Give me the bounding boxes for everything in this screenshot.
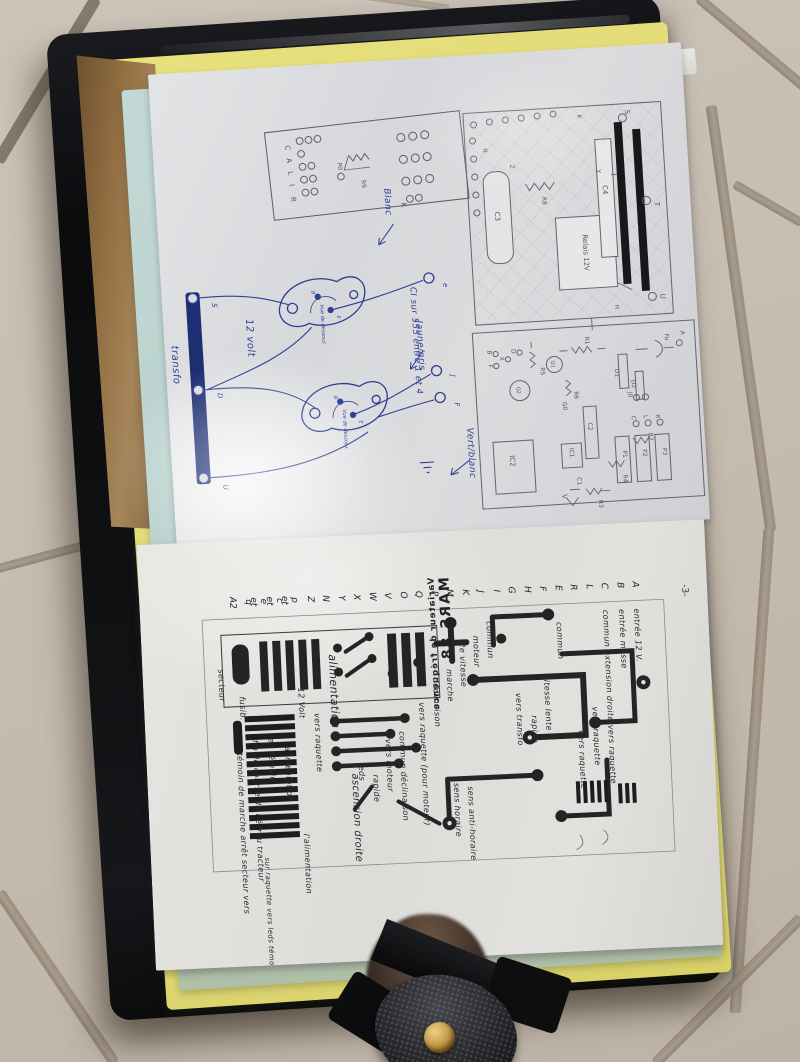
grout-line xyxy=(732,180,800,227)
part-label: P0 xyxy=(335,162,343,170)
annotation: 12 Volt xyxy=(296,688,306,719)
part-label: R9 xyxy=(359,180,367,189)
part-label: J0 xyxy=(626,391,633,398)
part-label: R6 xyxy=(572,391,579,400)
top-page-schematic: C A L I R K R9 P0 xyxy=(148,42,710,552)
part-label: Q1 xyxy=(549,360,555,367)
grout-line xyxy=(695,0,800,92)
terminal-letter: C xyxy=(283,145,292,151)
annotation: rapide xyxy=(530,715,540,743)
photo-scene: C A L I R K R9 P0 xyxy=(0,0,800,1062)
part-label: IC2 xyxy=(508,455,517,467)
out-terminal: e xyxy=(441,283,449,288)
part-label: R5 xyxy=(539,367,546,376)
wire-color-label: Blanc xyxy=(381,188,393,216)
package-note: Vue de dessous xyxy=(318,304,326,344)
edge-letter: N xyxy=(481,148,488,153)
out-terminal: J xyxy=(449,372,457,377)
part-label: D1 xyxy=(613,368,621,377)
part-label: R2 xyxy=(647,433,654,442)
annotation: commun xyxy=(555,622,566,660)
edge-letter: Y xyxy=(594,168,601,173)
blue-transfo-drawing: S D U e J F Vue de dessous B E Vue de de… xyxy=(182,220,471,491)
part-label: R8 xyxy=(540,197,547,206)
pin-label: B xyxy=(309,291,315,295)
annotation: commun xyxy=(484,621,495,659)
voltage-label: 12 volt xyxy=(243,319,256,358)
pin-label: E xyxy=(357,420,363,424)
annotation: rapide xyxy=(371,774,381,802)
bar-terminal: D xyxy=(215,393,223,399)
edge-letter: L xyxy=(642,415,649,419)
part-label: R1 xyxy=(583,336,590,345)
transfo-label: transfo xyxy=(169,345,182,384)
edge-letter: Z xyxy=(508,164,515,169)
edge-letter: D xyxy=(509,349,516,354)
part-label: C2 xyxy=(586,422,593,431)
grout-line xyxy=(0,540,90,573)
terminal-strip-box: C A L I R K R9 P0 xyxy=(264,111,469,223)
edge-letter: R xyxy=(654,414,661,419)
grout-line xyxy=(730,528,775,1014)
part-label: D2 xyxy=(629,379,637,388)
grout-line xyxy=(706,105,777,532)
top-page-drawing: C A L I R K R9 P0 xyxy=(148,42,710,552)
pin-label: B xyxy=(332,396,338,400)
part-label: P3 xyxy=(661,448,668,456)
terminal-letter-k: K xyxy=(399,202,408,208)
part-label: Fu xyxy=(663,333,670,341)
pin-label: E xyxy=(335,315,341,319)
annotation: marche xyxy=(445,669,455,702)
edge-letter: X xyxy=(498,356,505,361)
part-label: G0 xyxy=(561,402,569,411)
part-label: R4 xyxy=(621,474,628,483)
edge-letter: C xyxy=(630,416,637,421)
terminal-letter: I xyxy=(287,184,295,187)
bottom-page-pcb: Variateur de fréquence MARS 88 -3- A2 q … xyxy=(137,519,724,970)
connector-letter: A xyxy=(619,577,640,593)
part-label: C4 xyxy=(601,185,610,195)
package-note: Vue de dessous xyxy=(341,409,349,449)
page-number: -3- xyxy=(679,584,690,597)
part-label: P1 xyxy=(621,450,628,458)
terminal-letter: L xyxy=(286,171,294,176)
part-label: Q2 xyxy=(515,387,521,394)
annotation: secteur xyxy=(216,669,226,702)
annotation: fusib. xyxy=(238,696,248,721)
bar-terminal: S xyxy=(210,303,218,308)
bar-terminal: U xyxy=(221,485,229,491)
out-terminal: F xyxy=(453,402,461,407)
relay-section: C3 R8 Relais 12V C4 S T U K Y N Z H xyxy=(463,102,674,338)
component-box: Fu R1 R5 R6 D1 D2 Q1 Q2 C2 IC2 IC1 J0 G0… xyxy=(472,320,705,515)
part-label: R3 xyxy=(597,500,604,509)
bar-terminal: U xyxy=(658,294,666,300)
edge-letter: F xyxy=(486,364,493,368)
brass-stud xyxy=(424,1022,455,1053)
part-label: IC1 xyxy=(567,447,575,457)
edge-letter: B xyxy=(485,350,492,355)
edge-letter: H xyxy=(613,304,620,309)
part-label: P2 xyxy=(641,449,648,457)
edge-letter: A xyxy=(679,330,686,335)
part-label: C3 xyxy=(493,211,502,221)
terminal-letter: R xyxy=(289,197,298,203)
part-label: C1 xyxy=(575,477,582,486)
part-label: V xyxy=(560,494,568,499)
grout-line xyxy=(0,889,119,1062)
terminal-letter: A xyxy=(285,158,294,164)
annotation: moteur xyxy=(471,636,481,668)
